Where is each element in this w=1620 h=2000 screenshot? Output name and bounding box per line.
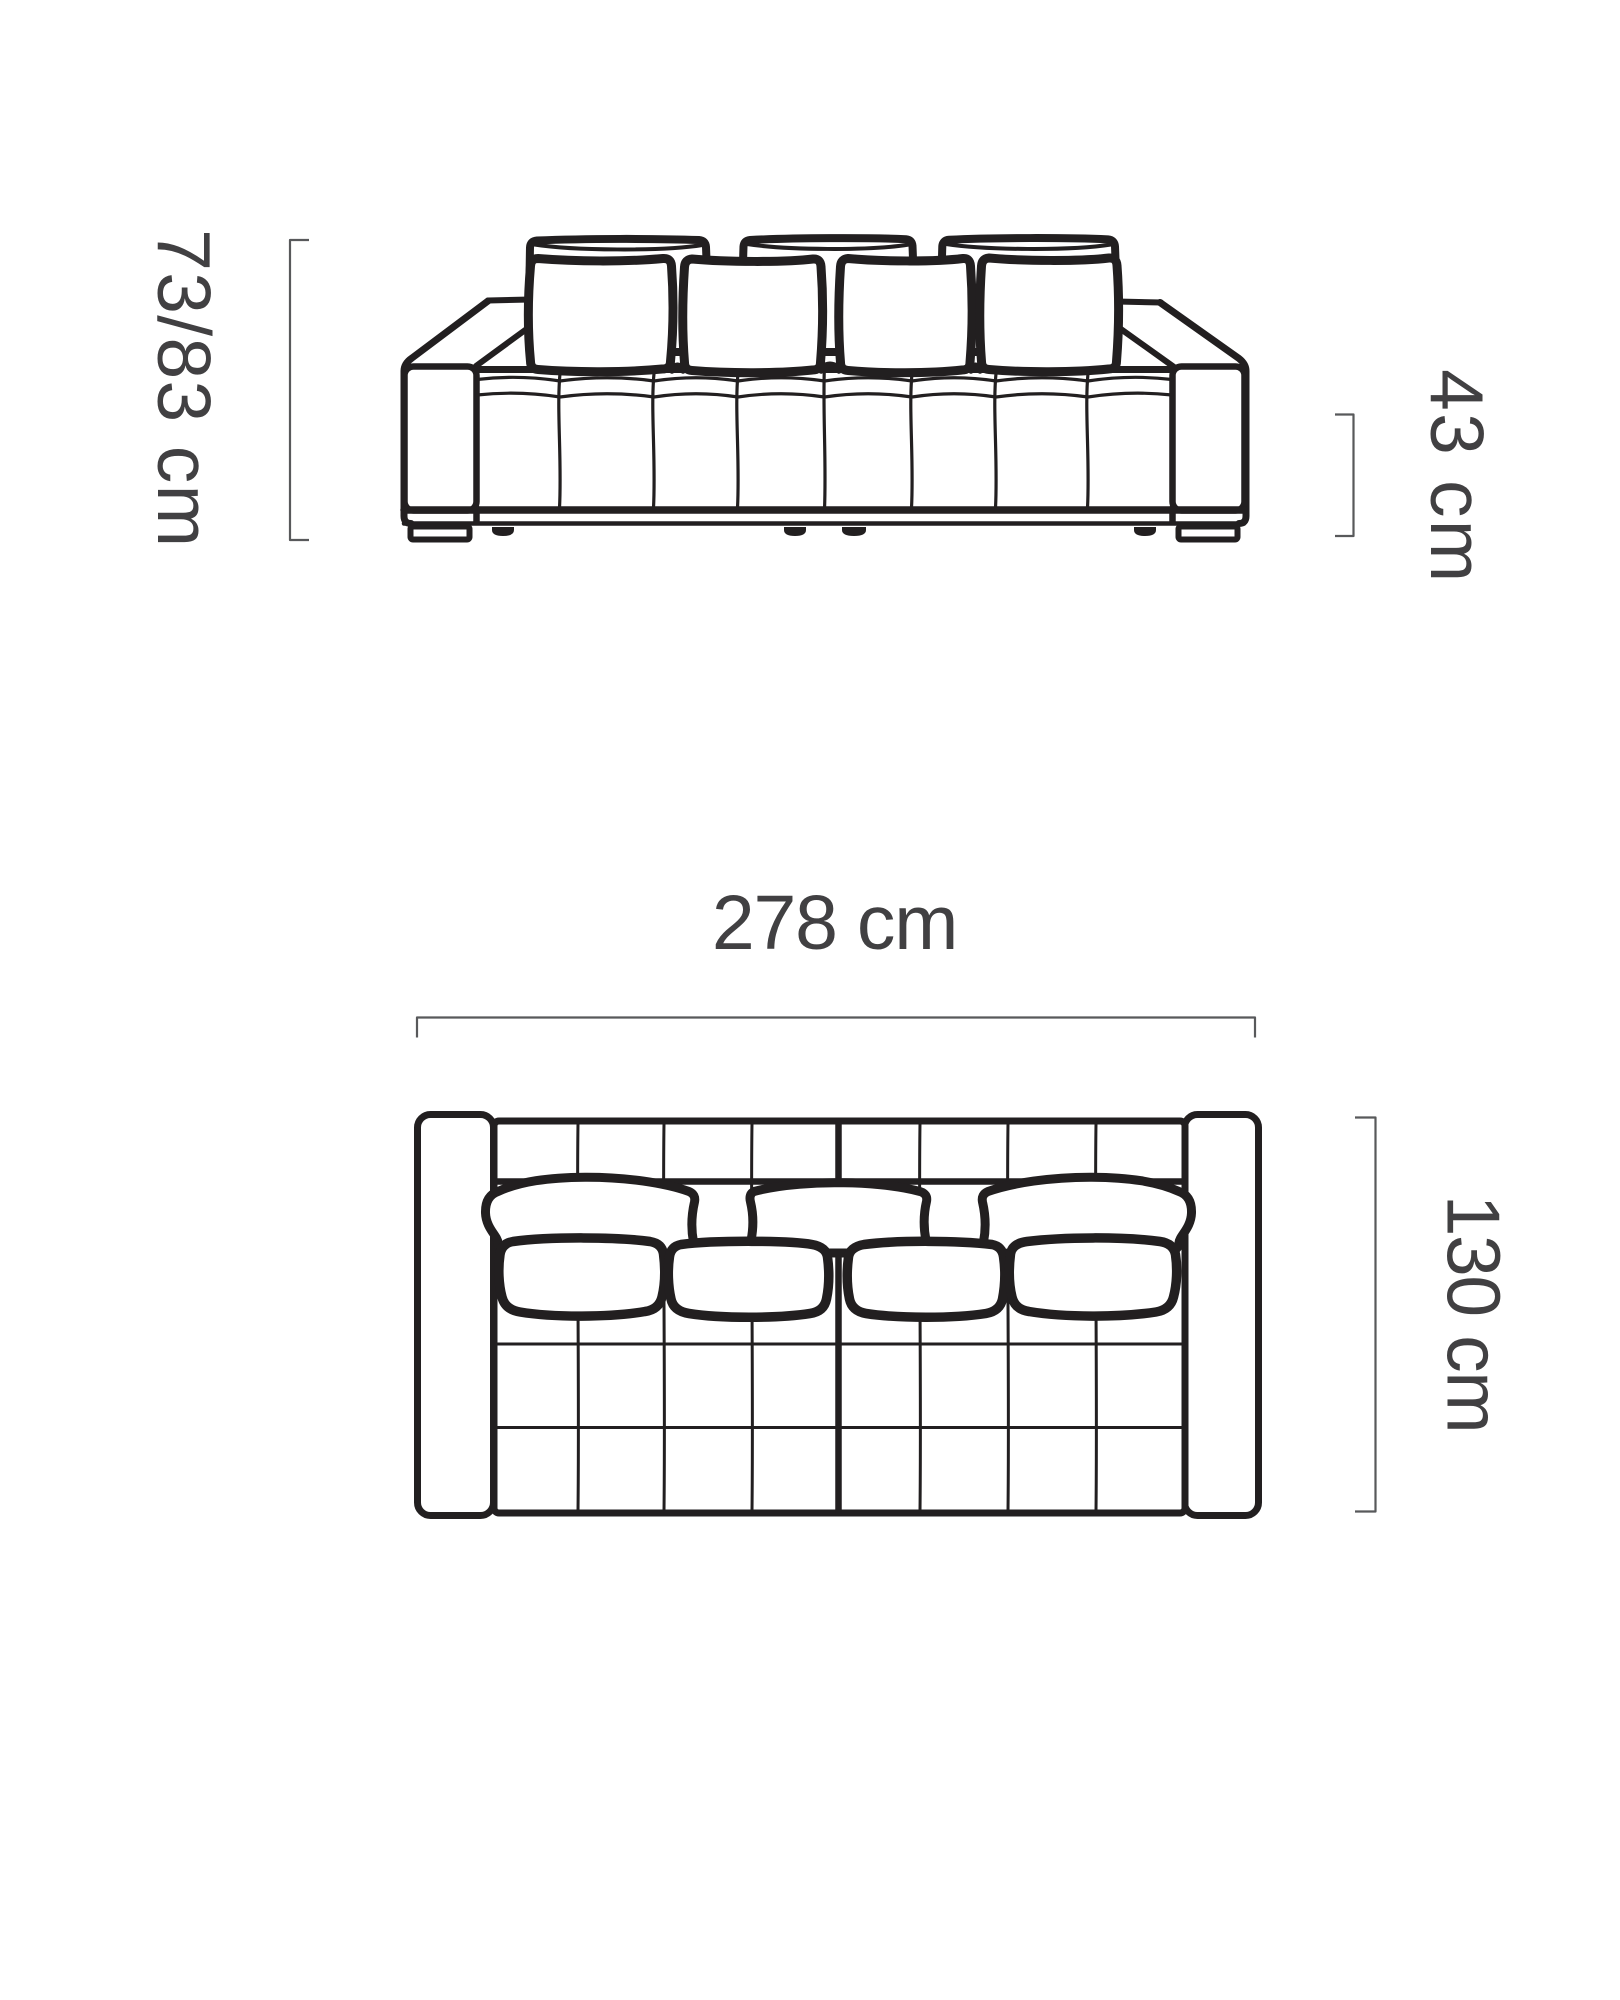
svg-text:278 cm: 278 cm — [712, 880, 957, 966]
svg-text:130 cm: 130 cm — [1432, 1195, 1516, 1433]
svg-text:43 cm: 43 cm — [1415, 369, 1499, 584]
svg-text:73/83 cm: 73/83 cm — [142, 229, 226, 548]
